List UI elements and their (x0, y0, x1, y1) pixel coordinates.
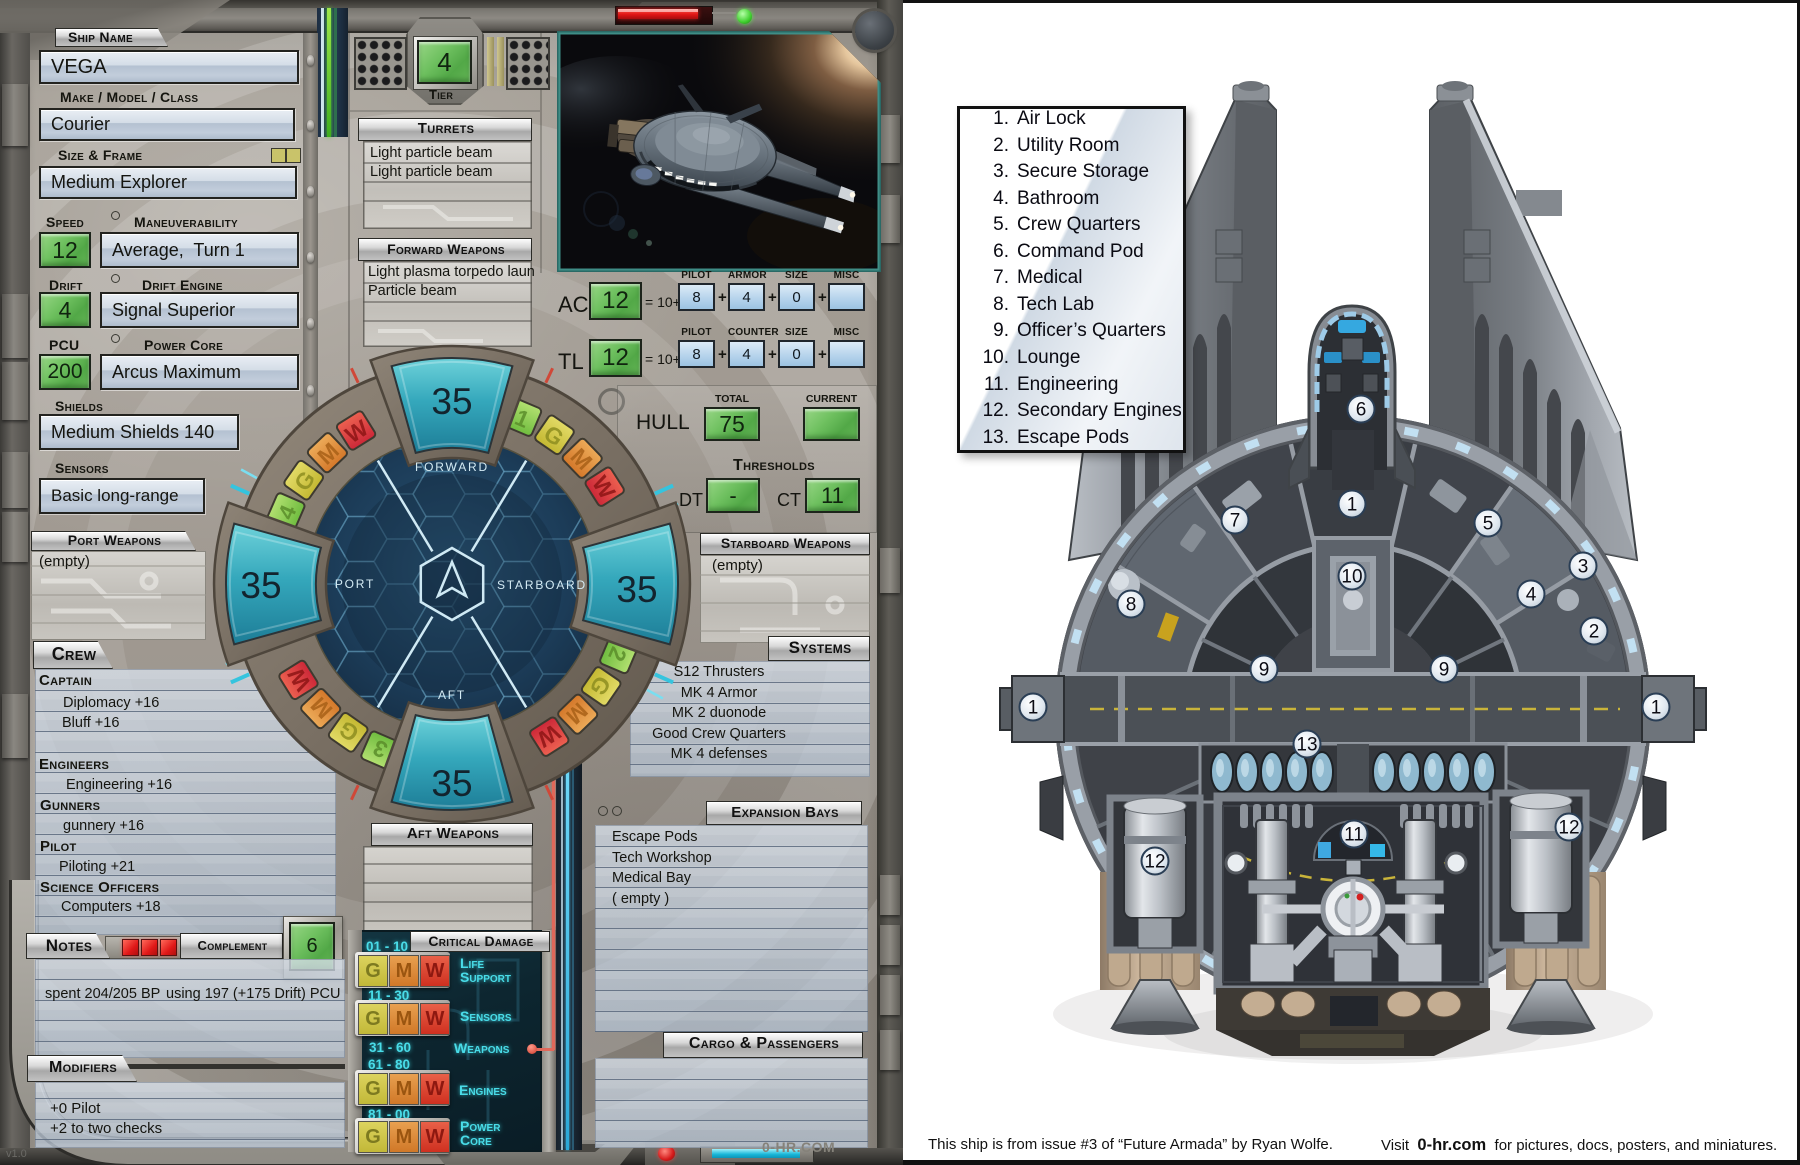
svg-text:1: 1 (1347, 495, 1358, 516)
svg-text:10: 10 (1341, 567, 1362, 588)
svg-text:7: 7 (1230, 511, 1241, 532)
svg-text:12: 12 (1144, 852, 1165, 873)
svg-text:6: 6 (1356, 400, 1367, 421)
svg-text:13: 13 (1296, 735, 1317, 756)
svg-text:12: 12 (1558, 818, 1579, 839)
svg-text:2: 2 (1589, 622, 1600, 643)
svg-text:9: 9 (1439, 660, 1450, 681)
svg-text:11: 11 (1344, 825, 1364, 846)
svg-text:3: 3 (1578, 557, 1589, 578)
svg-text:1: 1 (1651, 698, 1662, 719)
svg-text:8: 8 (1126, 595, 1137, 616)
svg-text:4: 4 (1526, 585, 1537, 606)
svg-text:1: 1 (1028, 698, 1039, 719)
svg-text:5: 5 (1483, 514, 1494, 535)
svg-text:9: 9 (1259, 660, 1270, 681)
